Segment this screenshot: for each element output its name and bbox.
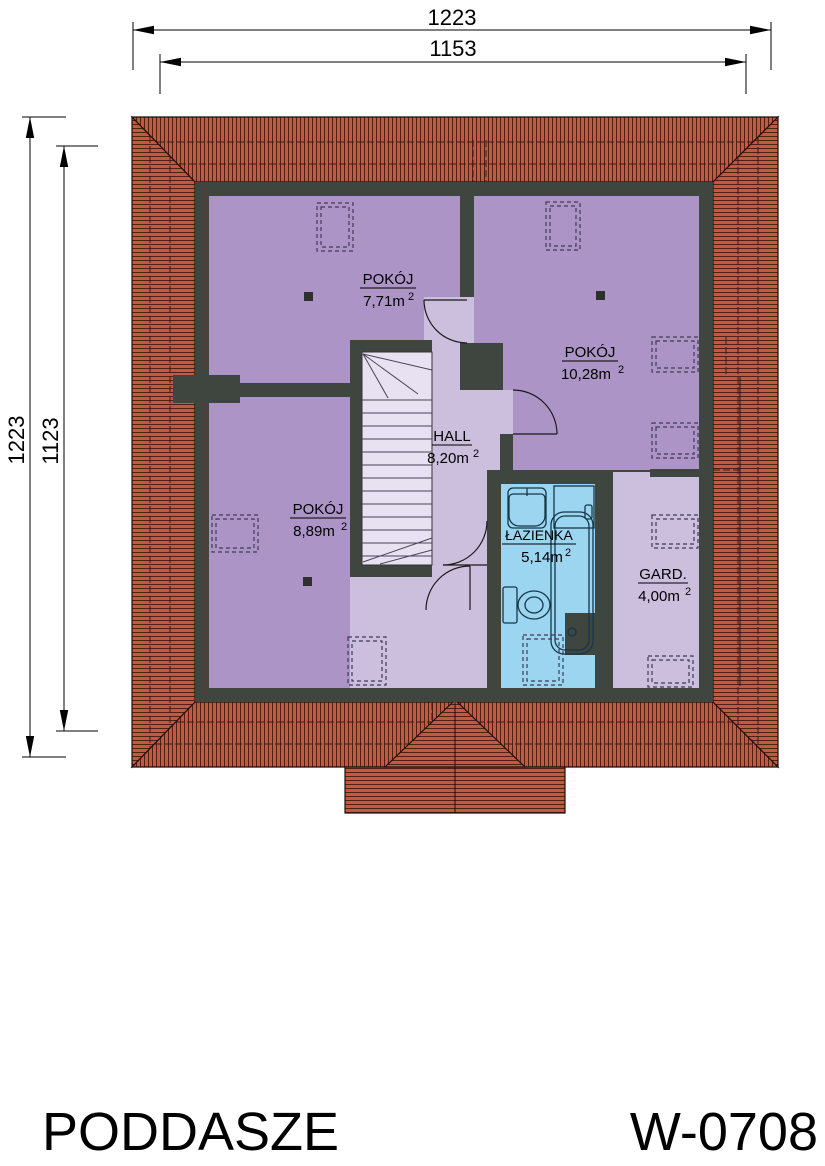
room-pokoj3-name: POKÓJ — [293, 501, 344, 518]
room-pokoj1-area: 7,71m — [363, 293, 405, 310]
dim-top-inner-value: 1153 — [429, 36, 476, 61]
room-pokoj2-area-sup: 2 — [618, 364, 624, 376]
room-pokoj2-area: 10,28m — [561, 366, 611, 383]
dim-left-inner-value: 1123 — [38, 417, 63, 464]
room-lazienka-area: 5,14m — [521, 549, 563, 566]
post-pokoj1 — [304, 292, 313, 301]
dimension-top-inner: 1153 — [160, 36, 746, 94]
room-hall-area-sup: 2 — [473, 448, 479, 460]
plan-code: W-0708 — [630, 1102, 818, 1162]
room-gard-area-sup: 2 — [685, 586, 691, 598]
dim-left-outer-value: 1223 — [4, 416, 29, 465]
dim-top-outer-value: 1223 — [428, 5, 477, 30]
post-pokoj3 — [303, 577, 312, 586]
room-pokoj2-name: POKÓJ — [565, 344, 616, 361]
room-pokoj1-name: POKÓJ — [363, 271, 414, 288]
staircase — [362, 352, 432, 565]
dimension-left-inner: 1123 — [38, 146, 98, 731]
room-lazienka-name: ŁAZIENKA — [505, 527, 573, 543]
room-pokoj1-area-sup: 2 — [408, 291, 414, 303]
room-lazienka-floor — [501, 470, 595, 688]
floor-title: PODDASZE — [42, 1102, 339, 1162]
room-hall-area: 8,20m — [427, 450, 469, 467]
roof-band-left — [132, 117, 195, 767]
floor-plan-page: 1223 1153 1223 1123 — [0, 0, 825, 1166]
room-pokoj3-floor — [209, 397, 350, 688]
room-gard-name: GARD. — [639, 566, 687, 583]
room-hall-name: HALL — [433, 428, 471, 445]
roof-band-right — [713, 117, 778, 767]
room-pokoj3-area: 8,89m — [293, 523, 335, 540]
roof-band-top — [132, 117, 778, 182]
floor-plan-drawing: 1223 1153 1223 1123 — [0, 0, 825, 1166]
room-gard-area: 4,00m — [638, 588, 680, 605]
post-pokoj2 — [596, 291, 605, 300]
room-lazienka-area-sup: 2 — [565, 547, 571, 559]
room-pokoj3-area-sup: 2 — [341, 521, 347, 533]
